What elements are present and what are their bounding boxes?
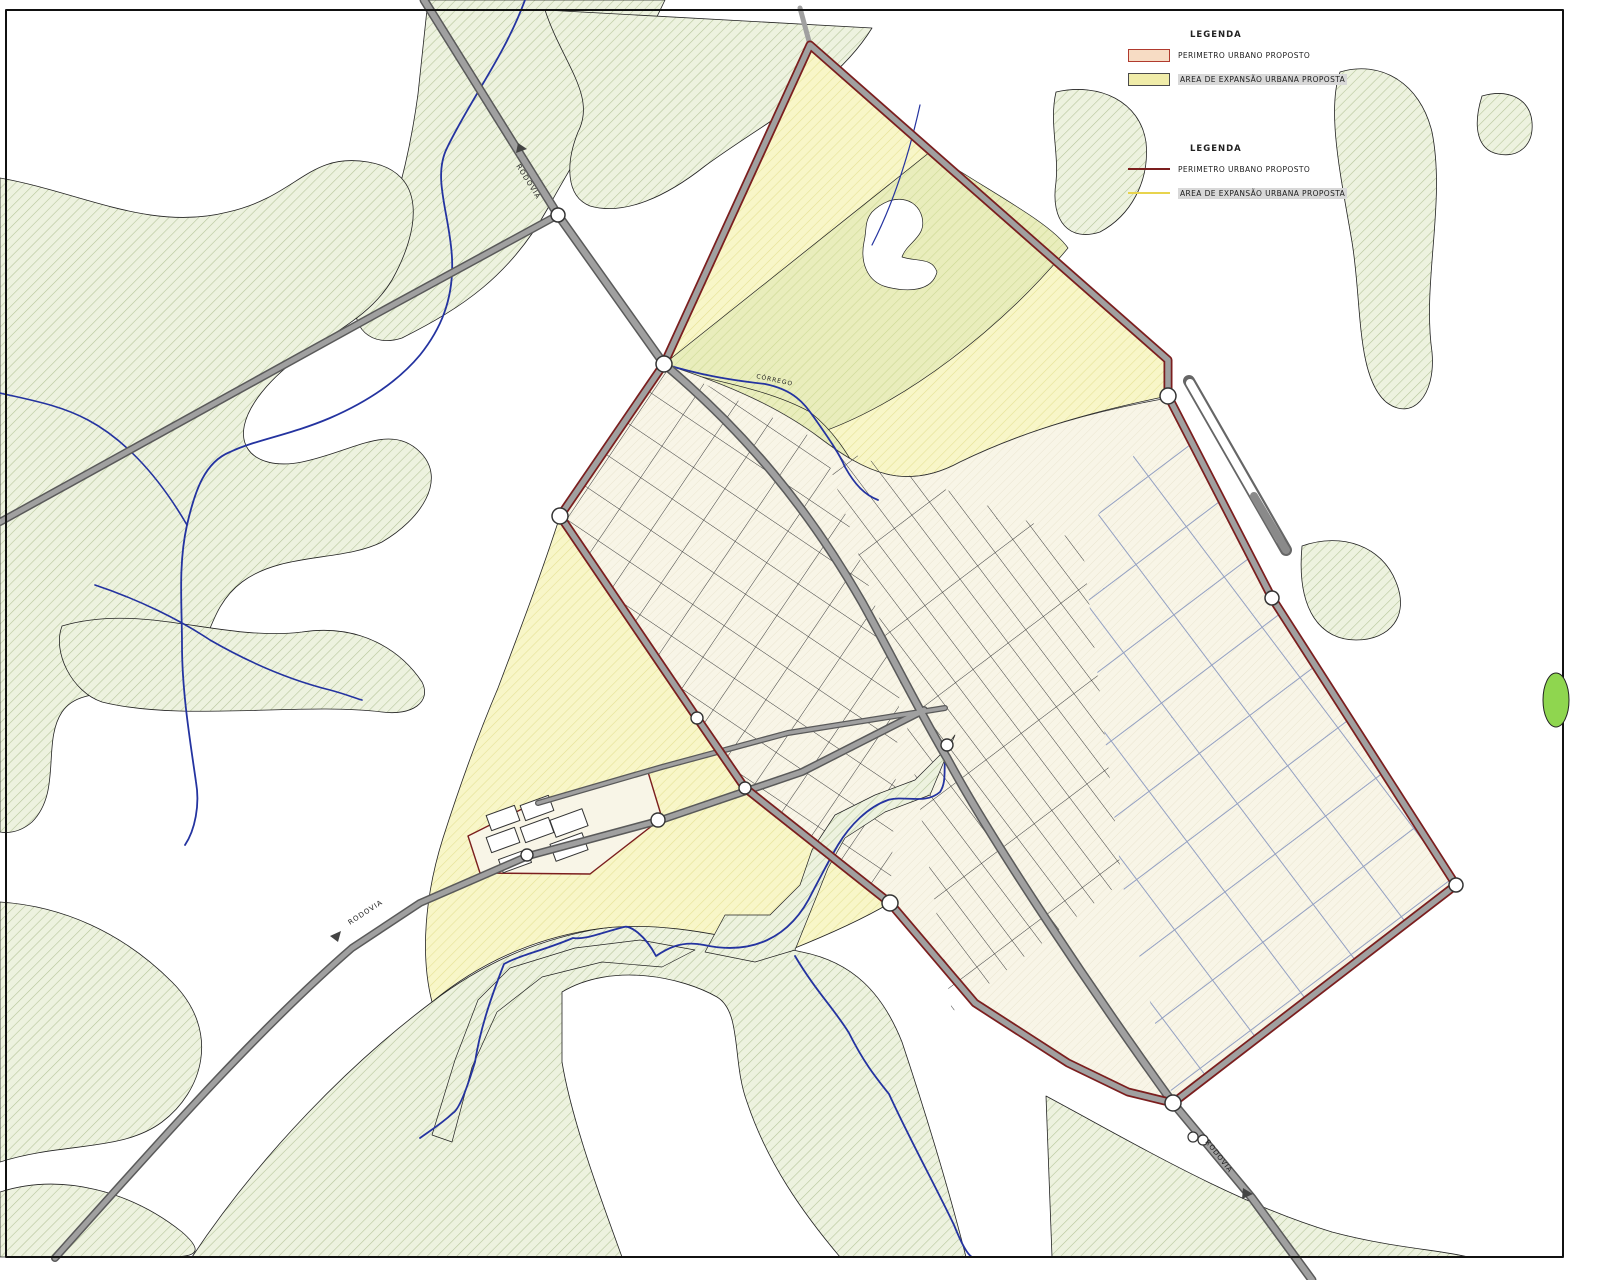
junction-node: [651, 813, 665, 827]
junction-node: [1160, 388, 1176, 404]
junction-node: [882, 895, 898, 911]
legend-title: LEGENDA: [1128, 144, 1398, 154]
veg-bright-green-right: [1543, 673, 1569, 727]
legend-item-perimeter: PERIMETRO URBANO PROPOSTO: [1128, 48, 1398, 62]
legend-item-perimeter-line: PERIMETRO URBANO PROPOSTO: [1128, 162, 1398, 176]
perimeter-swatch-line: [1128, 168, 1170, 170]
junction-node: [551, 208, 565, 222]
legend-item-label: PERIMETRO URBANO PROPOSTO: [1178, 165, 1310, 174]
railway-strip-solid: [1254, 496, 1286, 550]
road-label-southeast: RODOVIA: [1203, 1138, 1234, 1174]
legend-item-label: AREA DE EXPANSÃO URBANA PROPOSTA: [1178, 74, 1347, 85]
junction-node: [691, 712, 703, 724]
veg-topright-small: [1477, 94, 1532, 155]
road-label-southwest: RODOVIA: [347, 898, 385, 926]
legend-item-expansion-line: AREA DE EXPANSÃO URBANA PROPOSTA: [1128, 186, 1398, 200]
veg-bottom-right: [1046, 1096, 1468, 1257]
legend-lines: LEGENDA PERIMETRO URBANO PROPOSTO AREA D…: [1128, 144, 1398, 210]
legend-areas: LEGENDA PERIMETRO URBANO PROPOSTO AREA D…: [1128, 30, 1398, 96]
junction-node: [552, 508, 568, 524]
junction-node: [521, 849, 533, 861]
legend-title: LEGENDA: [1128, 30, 1398, 40]
perimeter-swatch-box: [1128, 49, 1170, 62]
veg-topright-tall: [1335, 69, 1437, 409]
junction-node: [941, 739, 953, 751]
junction-node: [656, 356, 672, 372]
veg-right-blob: [1301, 541, 1400, 640]
expansion-swatch-line: [1128, 192, 1170, 194]
junction-node: [1265, 591, 1279, 605]
legend-item-expansion: AREA DE EXPANSÃO URBANA PROPOSTA: [1128, 72, 1398, 86]
legend-item-label: AREA DE EXPANSÃO URBANA PROPOSTA: [1178, 188, 1347, 199]
road-arrow-southwest: [330, 931, 341, 942]
bridge-node: [1188, 1132, 1198, 1142]
expansion-swatch-box: [1128, 73, 1170, 86]
veg-left-band: [59, 618, 424, 712]
junction-node: [739, 782, 751, 794]
veg-corner-bottomleft: [0, 1184, 195, 1257]
veg-left-large: [0, 161, 431, 833]
legend-item-label: PERIMETRO URBANO PROPOSTO: [1178, 51, 1310, 60]
junction-node: [1165, 1095, 1181, 1111]
map-page: RODOVIARODOVIARODOVIACÓRREGO LEGENDA PER…: [0, 0, 1600, 1280]
junction-node: [1449, 878, 1463, 892]
